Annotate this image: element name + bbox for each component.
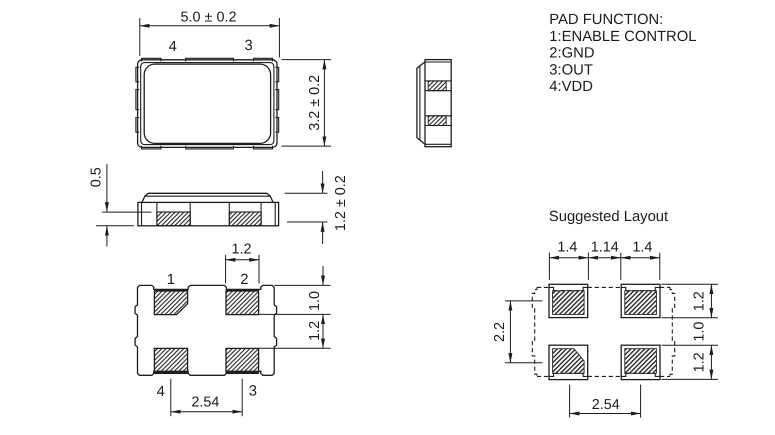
svg-text:3: 3 — [244, 38, 252, 54]
svg-text:2.2: 2.2 — [492, 322, 508, 342]
svg-text:1.4: 1.4 — [632, 240, 652, 256]
svg-text:2: 2 — [240, 272, 248, 288]
svg-text:1.0: 1.0 — [692, 322, 708, 342]
svg-text:1.2: 1.2 — [231, 242, 251, 258]
svg-text:1.14: 1.14 — [591, 240, 619, 256]
svg-text:1: 1 — [167, 272, 175, 288]
svg-text:5.0 ± 0.2: 5.0 ± 0.2 — [181, 10, 237, 26]
svg-text:1:ENABLE CONTROL: 1:ENABLE CONTROL — [549, 29, 696, 45]
svg-text:1.4: 1.4 — [557, 240, 577, 256]
svg-text:3: 3 — [249, 383, 257, 399]
svg-text:3.2 ± 0.2: 3.2 ± 0.2 — [307, 75, 323, 131]
svg-text:4: 4 — [169, 39, 177, 55]
svg-text:0.5: 0.5 — [89, 167, 105, 187]
svg-text:Suggested Layout: Suggested Layout — [549, 209, 668, 225]
svg-text:PAD FUNCTION:: PAD FUNCTION: — [549, 12, 663, 28]
svg-text:4:VDD: 4:VDD — [549, 79, 593, 95]
svg-text:1.2: 1.2 — [307, 321, 323, 341]
svg-text:2:GND: 2:GND — [549, 46, 594, 62]
svg-text:1.0: 1.0 — [307, 291, 323, 311]
svg-text:4: 4 — [157, 384, 165, 400]
svg-text:1.2 ± 0.2: 1.2 ± 0.2 — [333, 175, 349, 231]
svg-text:2.54: 2.54 — [191, 395, 219, 411]
svg-text:2.54: 2.54 — [592, 397, 620, 413]
svg-text:3:OUT: 3:OUT — [549, 62, 593, 78]
svg-text:1.2: 1.2 — [692, 352, 708, 372]
svg-text:1.2: 1.2 — [692, 291, 708, 311]
